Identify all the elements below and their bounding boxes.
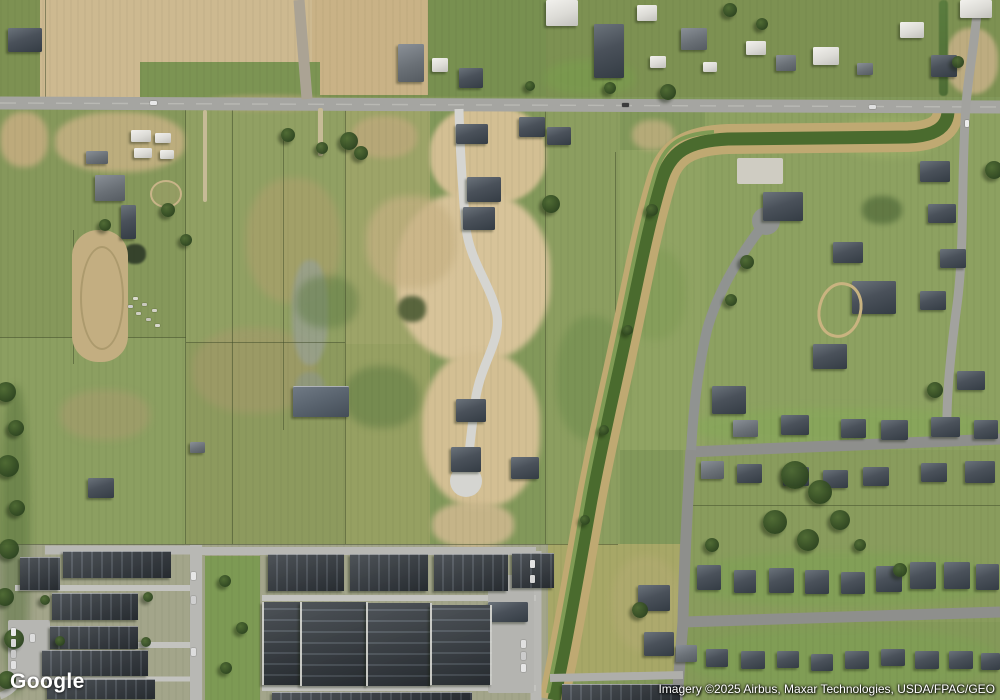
vehicle bbox=[136, 312, 141, 315]
imagery-attribution: Imagery ©2025 Airbus, Maxar Technologies… bbox=[658, 682, 995, 696]
vehicle bbox=[155, 324, 160, 327]
vehicle bbox=[142, 303, 147, 306]
vehicle bbox=[128, 305, 133, 308]
vehicle bbox=[965, 120, 969, 127]
vehicle bbox=[622, 103, 629, 107]
vehicle bbox=[530, 575, 535, 583]
vehicle bbox=[521, 664, 526, 672]
vehicle bbox=[530, 560, 535, 568]
vehicle bbox=[521, 652, 526, 660]
vehicle bbox=[869, 105, 876, 109]
google-logo[interactable]: Google bbox=[10, 670, 85, 694]
vehicle bbox=[11, 661, 16, 669]
vehicle bbox=[191, 572, 196, 580]
vehicle bbox=[152, 309, 157, 312]
vehicle bbox=[150, 101, 157, 105]
vehicle bbox=[30, 634, 35, 642]
vehicle bbox=[191, 648, 196, 656]
vehicle bbox=[11, 628, 16, 636]
vehicle bbox=[133, 297, 138, 300]
vehicle bbox=[11, 650, 16, 658]
vehicle bbox=[521, 640, 526, 648]
vehicle bbox=[11, 639, 16, 647]
vehicle bbox=[146, 318, 151, 321]
satellite-map[interactable]: Google Imagery ©2025 Airbus, Maxar Techn… bbox=[0, 0, 1000, 700]
vehicle bbox=[191, 596, 196, 604]
vehicles-layer bbox=[0, 0, 1000, 700]
